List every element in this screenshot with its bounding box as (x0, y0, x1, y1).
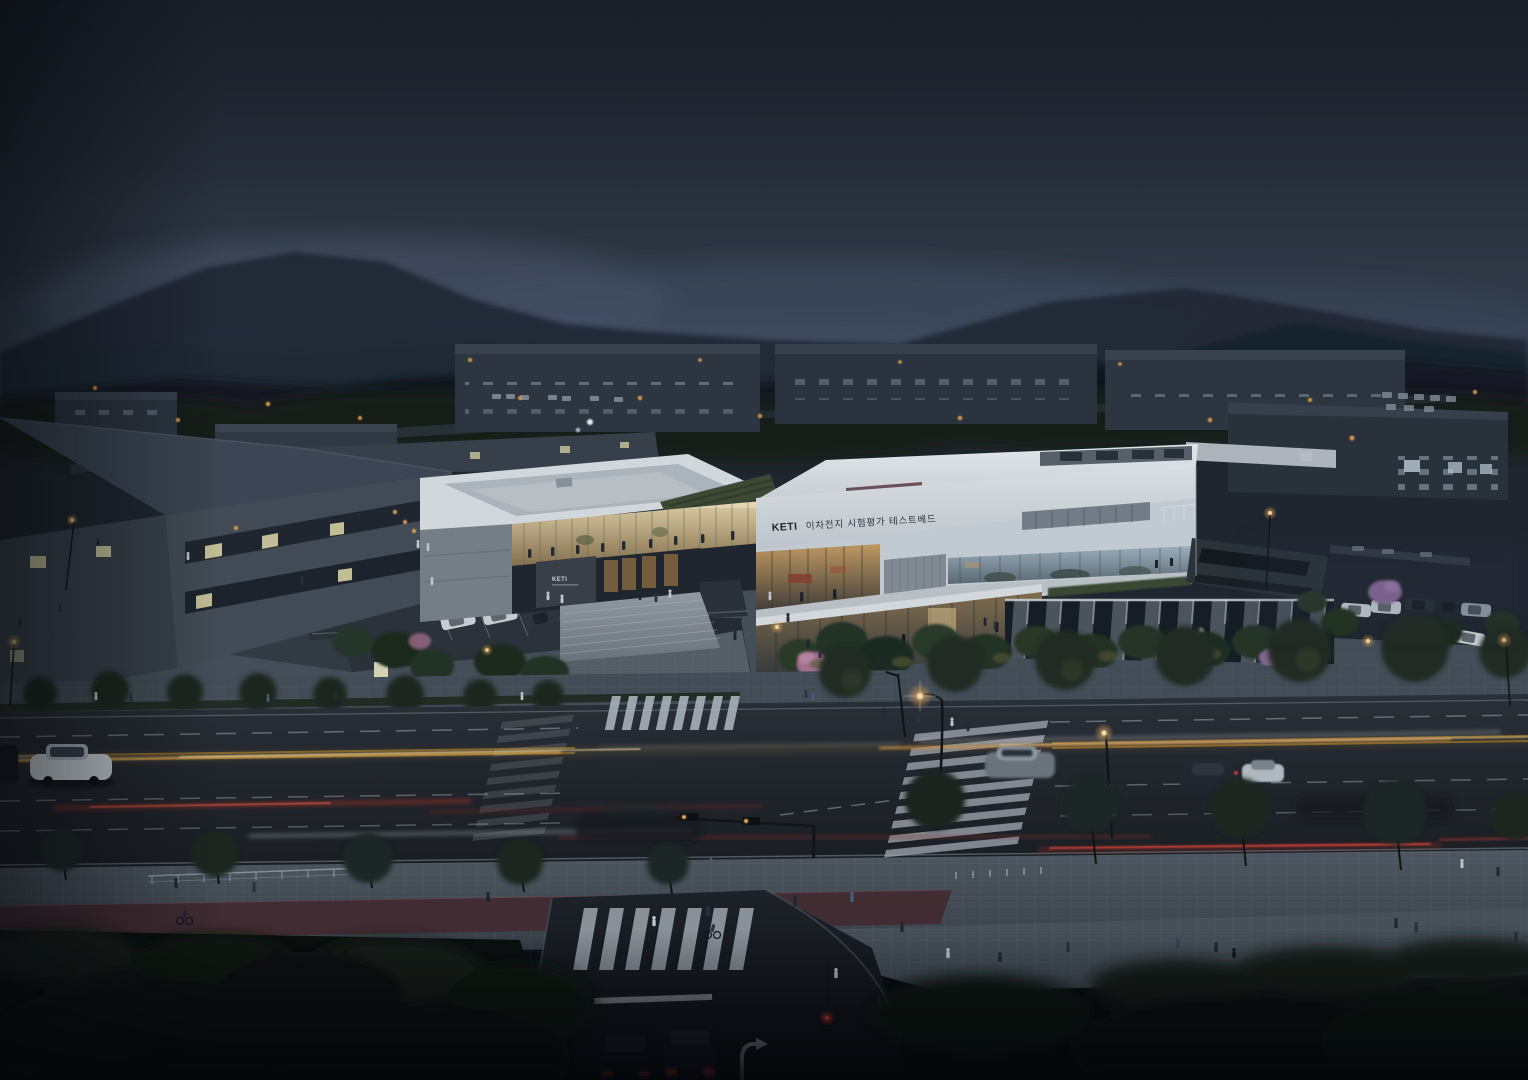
atmosphere (0, 0, 1528, 1080)
rendering-canvas: KETI KETI 이차전지 시험평가 테스트베드 (0, 0, 1528, 1080)
vignette-left (0, 0, 220, 1080)
vignette-bottom (0, 930, 1528, 1080)
vignette-top (0, 0, 1528, 200)
scene-svg: KETI KETI 이차전지 시험평가 테스트베드 (0, 0, 1528, 1080)
